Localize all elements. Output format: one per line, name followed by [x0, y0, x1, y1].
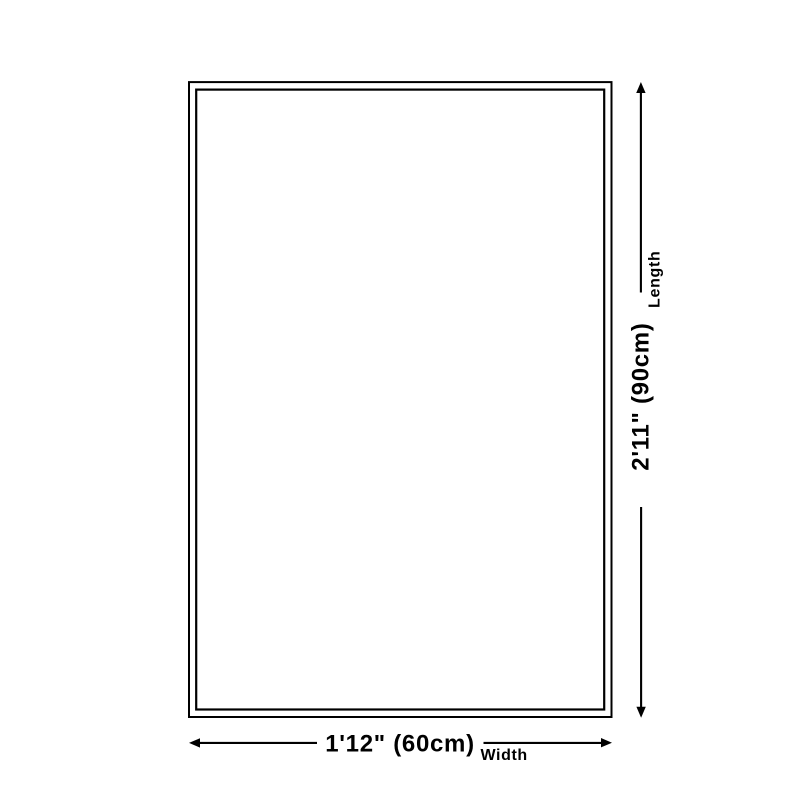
- svg-text:2'11" (90cm): 2'11" (90cm): [628, 322, 655, 470]
- svg-text:1'12" (60cm): 1'12" (60cm): [325, 731, 475, 758]
- svg-text:Length: Length: [647, 250, 664, 308]
- svg-text:Width: Width: [481, 747, 528, 764]
